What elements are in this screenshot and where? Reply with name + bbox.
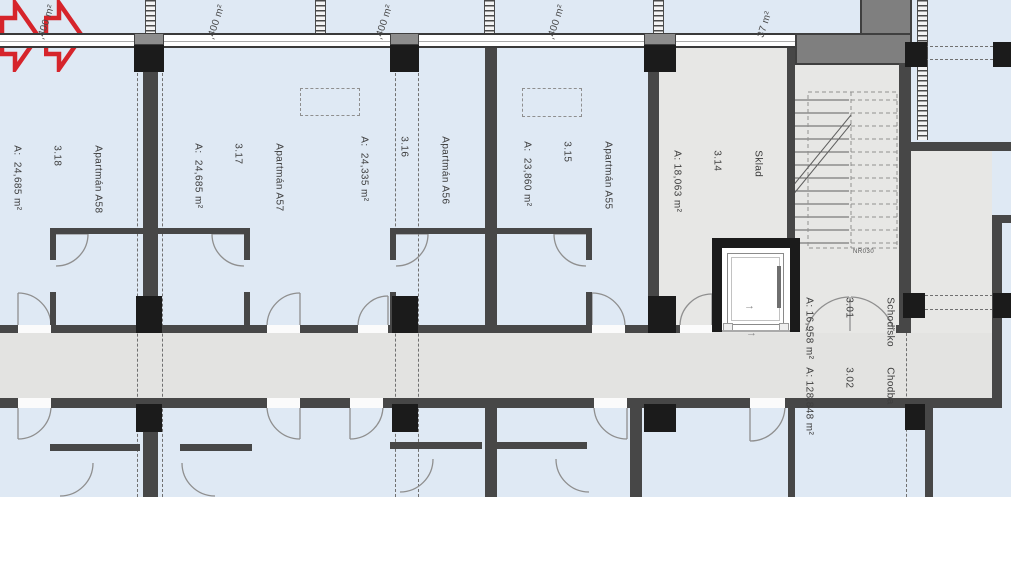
apartment-name: Apartmán A58	[91, 145, 105, 241]
door-arc	[267, 406, 300, 439]
column	[392, 404, 418, 432]
room-name: Sklad	[751, 150, 765, 246]
elevator-car-inner	[731, 257, 780, 321]
door-arc	[680, 294, 712, 326]
door-opening	[18, 325, 51, 333]
door-arc	[18, 406, 51, 439]
door-arc	[350, 406, 383, 439]
wall-segment	[300, 325, 358, 333]
door-arc	[554, 234, 586, 266]
stair-break-line	[792, 124, 851, 196]
stair-dashed-outline	[808, 92, 897, 248]
apartment-number: 3.16	[397, 136, 411, 232]
wall-segment	[0, 398, 18, 408]
floorplan-sheet: Apartmán A58 3.18 A: 24,685 m² Apartmán …	[0, 0, 1011, 497]
wall-segment	[390, 442, 482, 449]
apartment-label-a55: Apartmán A55 3.15 A: 23,860 m²	[493, 141, 642, 237]
room-area: A: 18,063 m²	[670, 150, 684, 246]
elevator-wall	[712, 238, 722, 332]
wall-segment	[497, 442, 587, 449]
apartment-number: 3.17	[231, 143, 245, 239]
wall-segment	[143, 48, 158, 325]
wall-segment	[485, 406, 497, 497]
wall-segment	[925, 406, 933, 497]
door-arc	[18, 293, 51, 326]
corridor-label: Chodba 3.02 A: 128,848 m²	[775, 367, 924, 463]
floorplan-page: Apartmán A58 3.18 A: 24,685 m² Apartmán …	[0, 0, 1011, 570]
apartment-label-a57: Apartmán A57 3.17 A: 24,685 m²	[164, 143, 313, 239]
column	[390, 33, 419, 45]
column	[134, 45, 164, 72]
column	[644, 33, 676, 45]
apartment-area: A: 24,335 m²	[357, 136, 371, 232]
room-number: 3.14	[710, 150, 724, 246]
wall-segment	[0, 325, 18, 333]
direction-arrow: →	[746, 327, 757, 339]
stair-code-label: NR030	[853, 249, 874, 255]
direction-arrow: →	[744, 300, 755, 312]
door-arc	[594, 406, 627, 439]
wall-segment	[180, 444, 252, 451]
column	[390, 45, 419, 72]
room-name: Chodba	[883, 367, 897, 463]
door-opening	[50, 260, 56, 292]
door-opening	[244, 260, 250, 292]
door-opening	[18, 398, 51, 408]
column	[993, 293, 1011, 318]
door-opening	[680, 325, 712, 333]
column	[392, 296, 418, 333]
door-opening	[267, 325, 300, 333]
apartment-name: Apartmán A55	[601, 141, 615, 237]
room-number: 3.02	[842, 367, 856, 463]
staircase-steps	[792, 92, 897, 248]
door-opening	[350, 398, 383, 408]
door-arc	[358, 296, 388, 326]
apartment-label-a56: Apartmán A56 3.16 A: 24,335 m²	[330, 136, 479, 232]
wall-segment	[899, 142, 1011, 151]
column	[644, 404, 676, 432]
door-opening	[390, 260, 396, 292]
column	[136, 296, 162, 333]
door-opening	[592, 325, 625, 333]
door-arc	[400, 459, 433, 492]
door-arc	[267, 293, 300, 326]
apartment-name: Apartmán A57	[272, 143, 286, 239]
column	[134, 33, 164, 45]
door-arc	[60, 463, 93, 496]
door-opening	[267, 398, 300, 408]
apartment-area: A: 24,685 m²	[10, 145, 24, 241]
wall-segment	[50, 444, 140, 451]
apartment-number: 3.18	[50, 145, 64, 241]
door-arc	[592, 293, 625, 326]
apartment-label-a58: Apartmán A58 3.18 A: 24,685 m²	[0, 145, 131, 241]
door-arc	[556, 459, 589, 492]
column	[644, 45, 676, 72]
apartment-number: 3.15	[560, 141, 574, 237]
apartment-area: A: 23,860 m²	[520, 141, 534, 237]
wall-segment	[388, 325, 592, 333]
column	[136, 404, 162, 432]
door-opening	[358, 325, 388, 333]
room-area: A: 128,848 m²	[802, 367, 816, 463]
column	[648, 296, 676, 333]
apartment-name: Apartmán A56	[438, 136, 452, 232]
door-opening	[594, 398, 627, 408]
storage-label: Sklad 3.14 A: 18,063 m²	[643, 150, 792, 246]
column	[993, 42, 1011, 67]
apartment-area: A: 24,685 m²	[191, 143, 205, 239]
door-arc	[396, 234, 428, 266]
wall-segment	[300, 398, 350, 408]
wall-segment	[630, 406, 642, 497]
wall-segment	[992, 215, 1011, 223]
column	[905, 42, 927, 67]
door-arc	[182, 463, 215, 496]
door-opening	[586, 260, 592, 292]
